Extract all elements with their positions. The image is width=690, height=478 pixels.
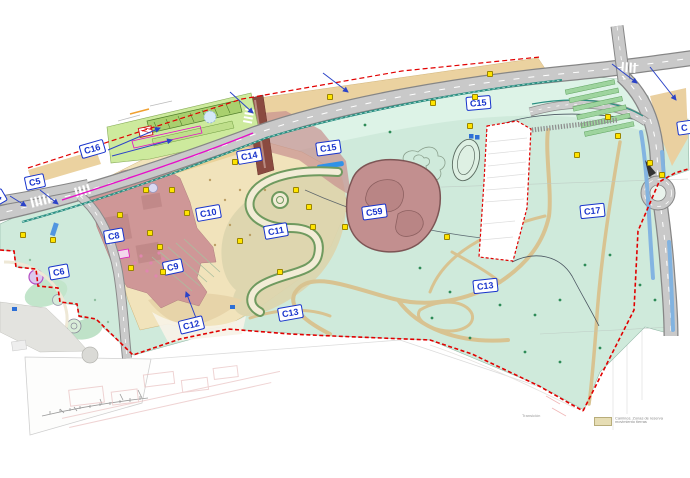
legend-line-2: movimiento tierras: [615, 420, 647, 425]
site-plan-canvas: C4 C5 C16 C6 C8 C9 C10 C11 C12 C13 C13 C…: [0, 0, 690, 478]
site-plan-drawing: [0, 0, 690, 478]
tan-northwest: [28, 150, 101, 184]
orange-tick: [130, 109, 149, 114]
fountain-pond: [204, 111, 216, 123]
legend-side-note: Transición: [522, 414, 540, 419]
legend-swatch: [594, 417, 612, 426]
legend-text: Caminos. Zonas de reserva movimiento tie…: [615, 417, 663, 425]
legend: Caminos. Zonas de reserva movimiento tie…: [594, 417, 676, 428]
